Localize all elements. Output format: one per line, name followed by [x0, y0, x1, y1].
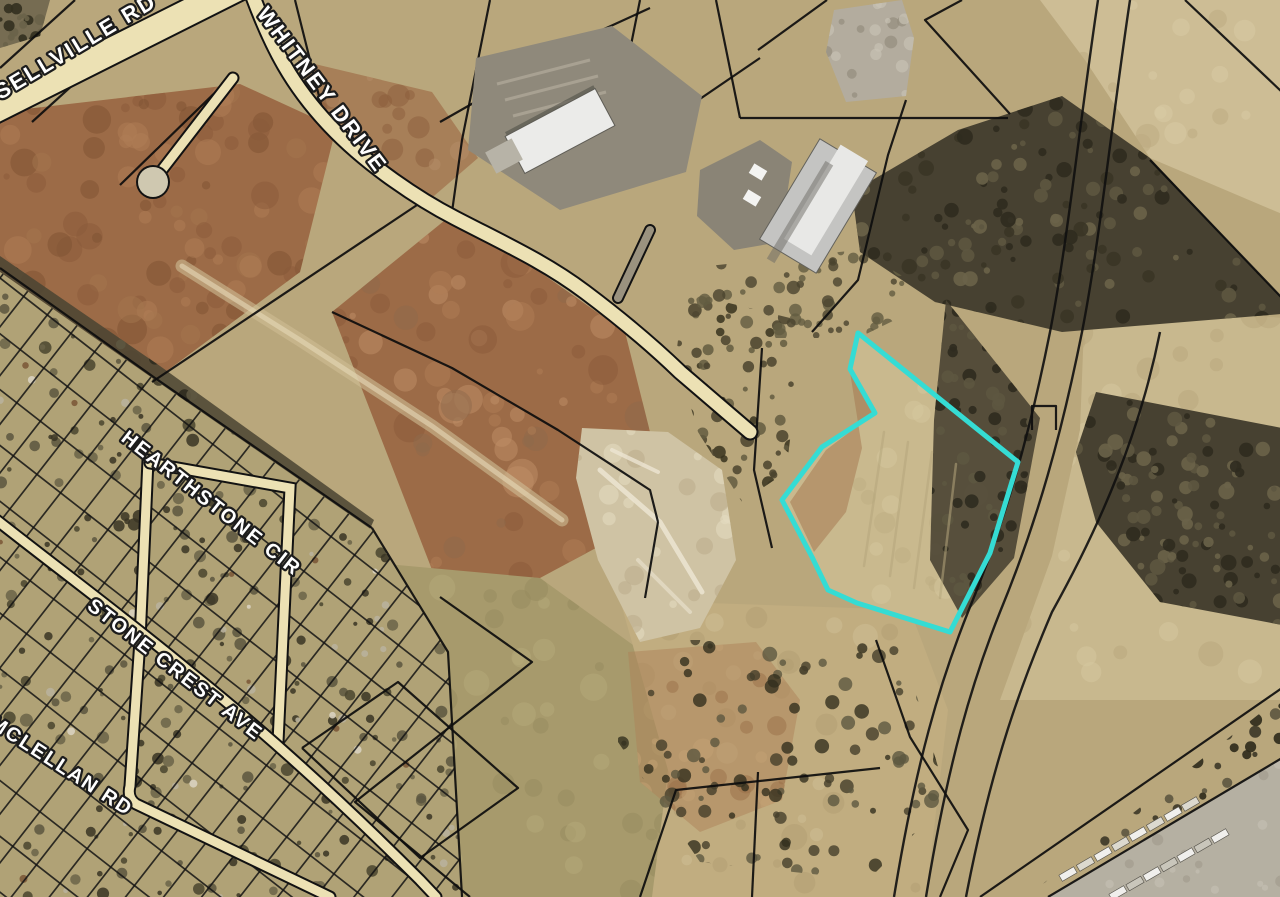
parcel-map-canvas: RUSSELLVILLE RDWHITNEY DRIVEHEARTHSTONE …	[0, 0, 1280, 897]
cul-de-sac-bulb	[138, 167, 168, 197]
aerial-parcel-map: RUSSELLVILLE RDWHITNEY DRIVEHEARTHSTONE …	[0, 0, 1280, 897]
